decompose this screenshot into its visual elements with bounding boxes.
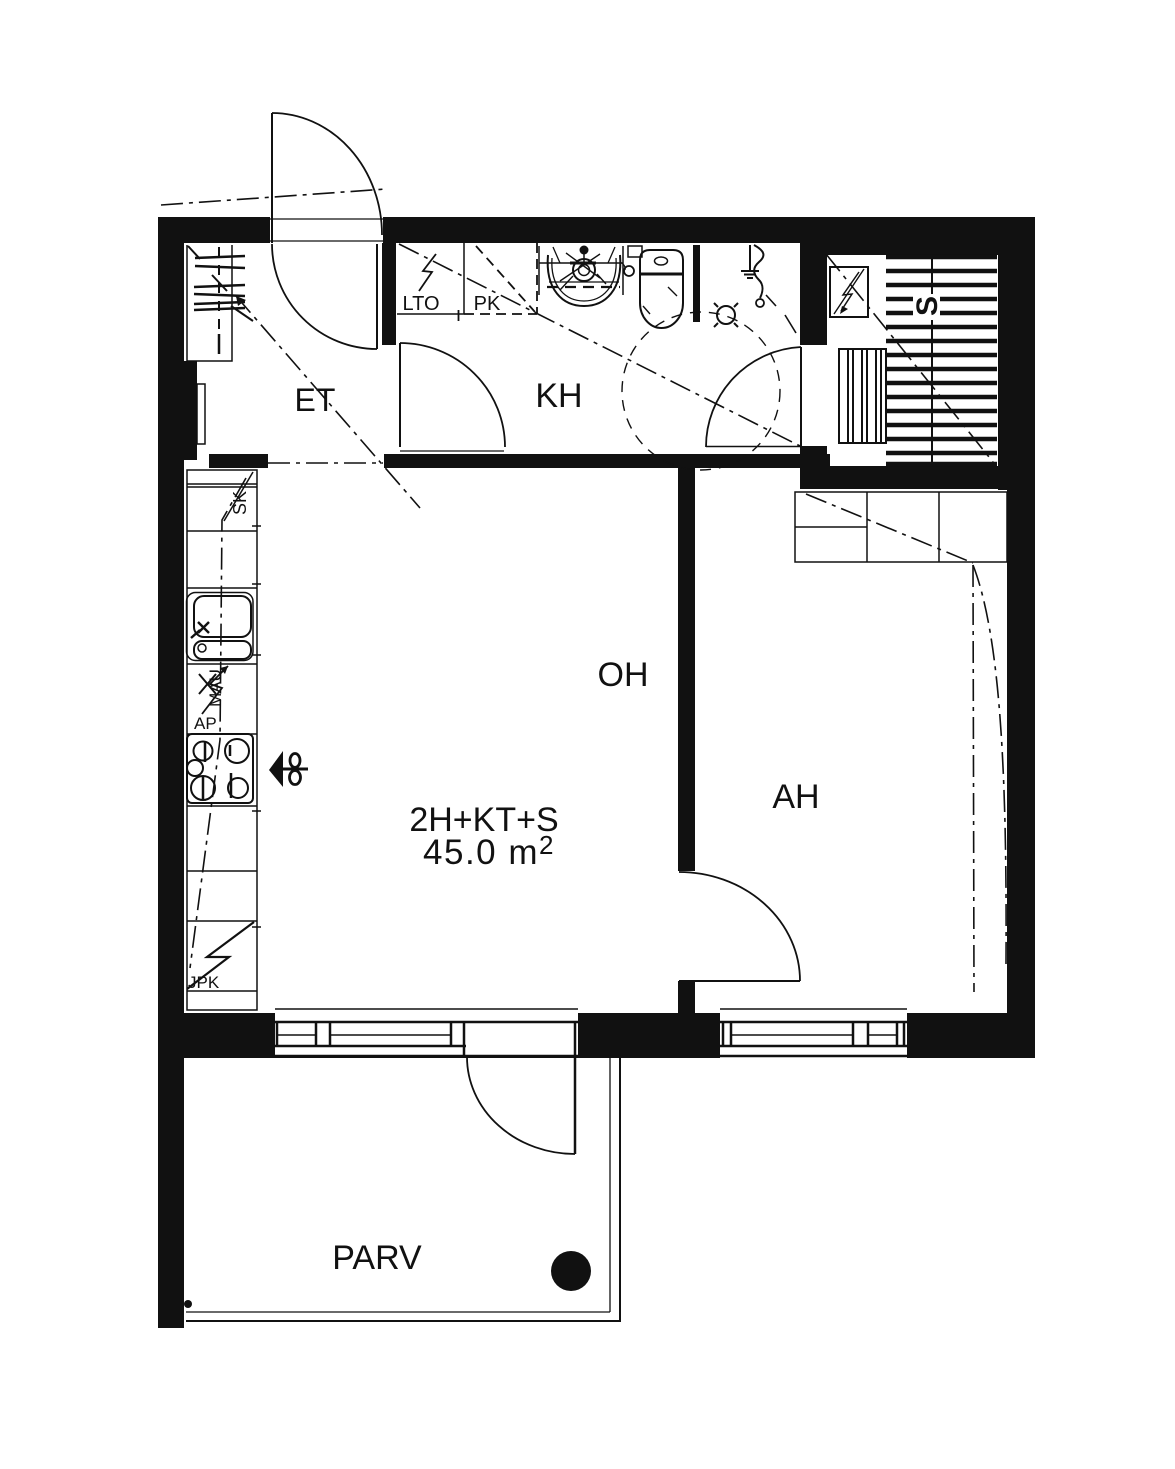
svg-text:SK: SK [230, 491, 250, 515]
svg-text:JPK: JPK [188, 973, 220, 992]
svg-text:ET: ET [295, 382, 336, 418]
svg-text:S: S [911, 296, 944, 316]
svg-text:AH: AH [772, 778, 819, 816]
svg-text:MAU: MAU [206, 669, 225, 707]
svg-text:LTO: LTO [402, 293, 439, 315]
svg-text:AP: AP [194, 714, 217, 733]
svg-text:PK: PK [474, 293, 501, 315]
svg-text:45.0 m2: 45.0 m2 [423, 830, 555, 872]
svg-text:OH: OH [598, 656, 649, 694]
svg-text:KH: KH [535, 377, 582, 415]
svg-text:PARV: PARV [332, 1239, 422, 1277]
